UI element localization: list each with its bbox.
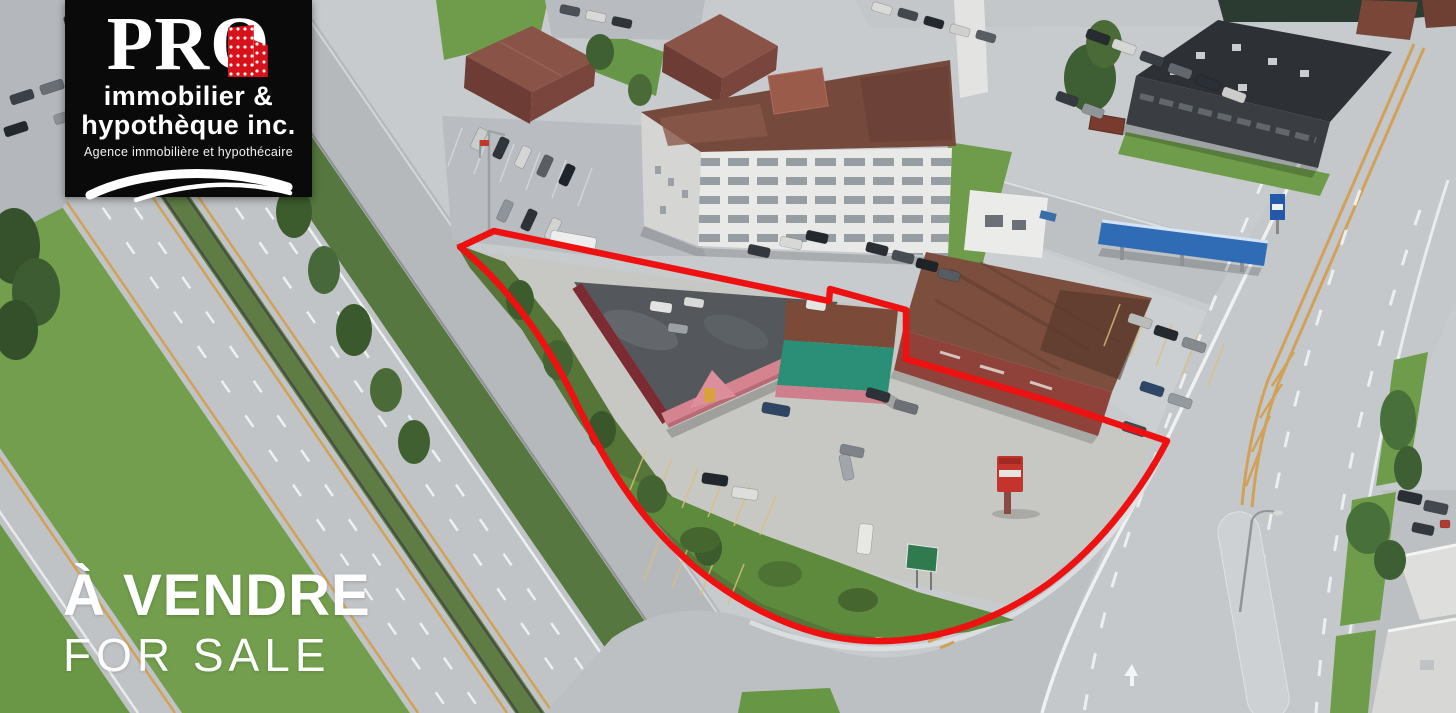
pylon-pole: [1004, 490, 1011, 514]
flag-icon: [480, 140, 489, 146]
red-building-icon: [225, 21, 269, 79]
storefront-sign: [704, 388, 715, 402]
green-highway-sign: [906, 544, 938, 572]
swoosh-icon: [84, 161, 294, 203]
sale-title: À VENDRE: [63, 564, 371, 628]
flyer-canvas: PRO immobilier & hypothèque inc. Agence …: [0, 0, 1456, 713]
logo-line2: hypothèque inc.: [65, 111, 312, 140]
brand-wordmark: PRO: [107, 8, 270, 80]
white-van: [856, 523, 873, 554]
logo-line1: immobilier &: [65, 82, 312, 111]
sale-subtitle: FOR SALE: [63, 632, 371, 678]
convenience-store: [964, 190, 1048, 258]
traffic-island: [738, 688, 840, 713]
teal-building: [777, 340, 894, 392]
sale-banner: À VENDRE FOR SALE: [63, 564, 371, 678]
logo-tagline: Agence immobilière et hypothécaire: [65, 145, 312, 159]
brand-logo: PRO immobilier & hypothèque inc. Agence …: [65, 0, 312, 197]
